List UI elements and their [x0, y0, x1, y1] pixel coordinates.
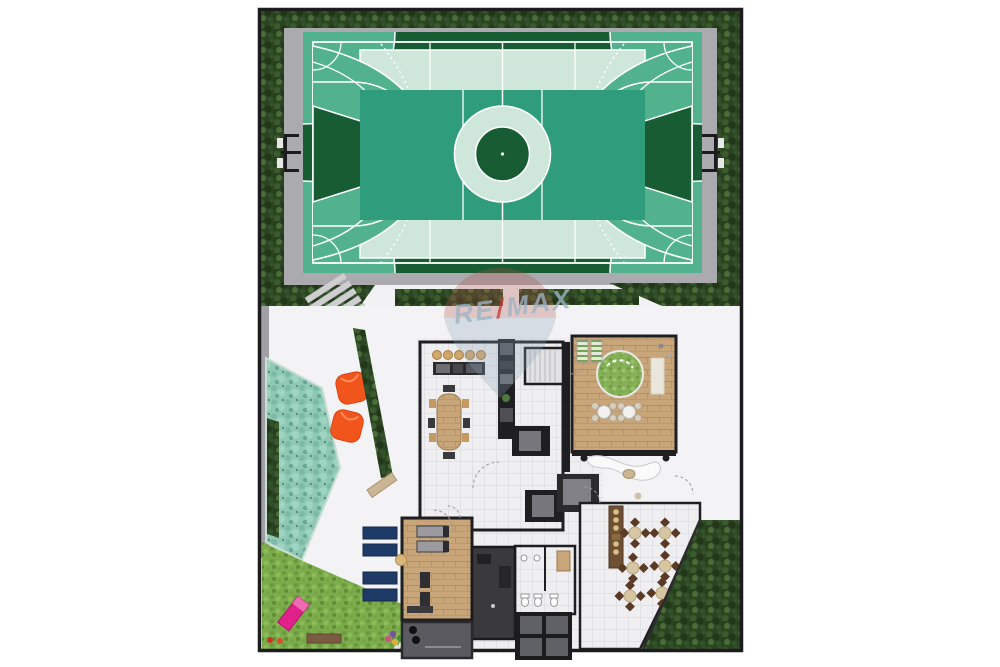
stone-table: [623, 470, 635, 479]
poolside-hedge: [267, 418, 279, 538]
deck-deco: [659, 344, 664, 349]
core-wall: [563, 342, 570, 472]
side-table: [396, 555, 407, 566]
skylight: [515, 612, 572, 660]
garden-flower: [277, 638, 283, 644]
dumbbell-rack: [407, 606, 433, 613]
sink: [521, 555, 527, 561]
deck-deco: [667, 354, 671, 358]
wood-deck: [572, 336, 676, 452]
bathrooms: [515, 546, 575, 614]
deck-mat: [651, 358, 664, 394]
sink: [534, 555, 540, 561]
elevator-1: [512, 426, 550, 456]
weight-station: [420, 572, 430, 588]
stone: [635, 493, 642, 500]
real-estate-siteplan-rendering: { "watermark": { "re": "RE", "slash": "/…: [0, 0, 1000, 667]
round-green-daybed: [597, 351, 643, 397]
hedge-top: [261, 9, 740, 28]
garden-bench: [307, 634, 341, 643]
gym: [402, 518, 472, 620]
garden-flower: [267, 637, 273, 643]
gym-annex: [402, 622, 472, 658]
toilets: [521, 594, 558, 607]
media-room: [472, 547, 515, 639]
weight-station: [420, 592, 430, 608]
center-circle: [455, 106, 551, 202]
plant-pot: [581, 455, 588, 462]
siteplan-canvas: RE/MAX: [257, 6, 744, 662]
plant-pot: [663, 455, 670, 462]
